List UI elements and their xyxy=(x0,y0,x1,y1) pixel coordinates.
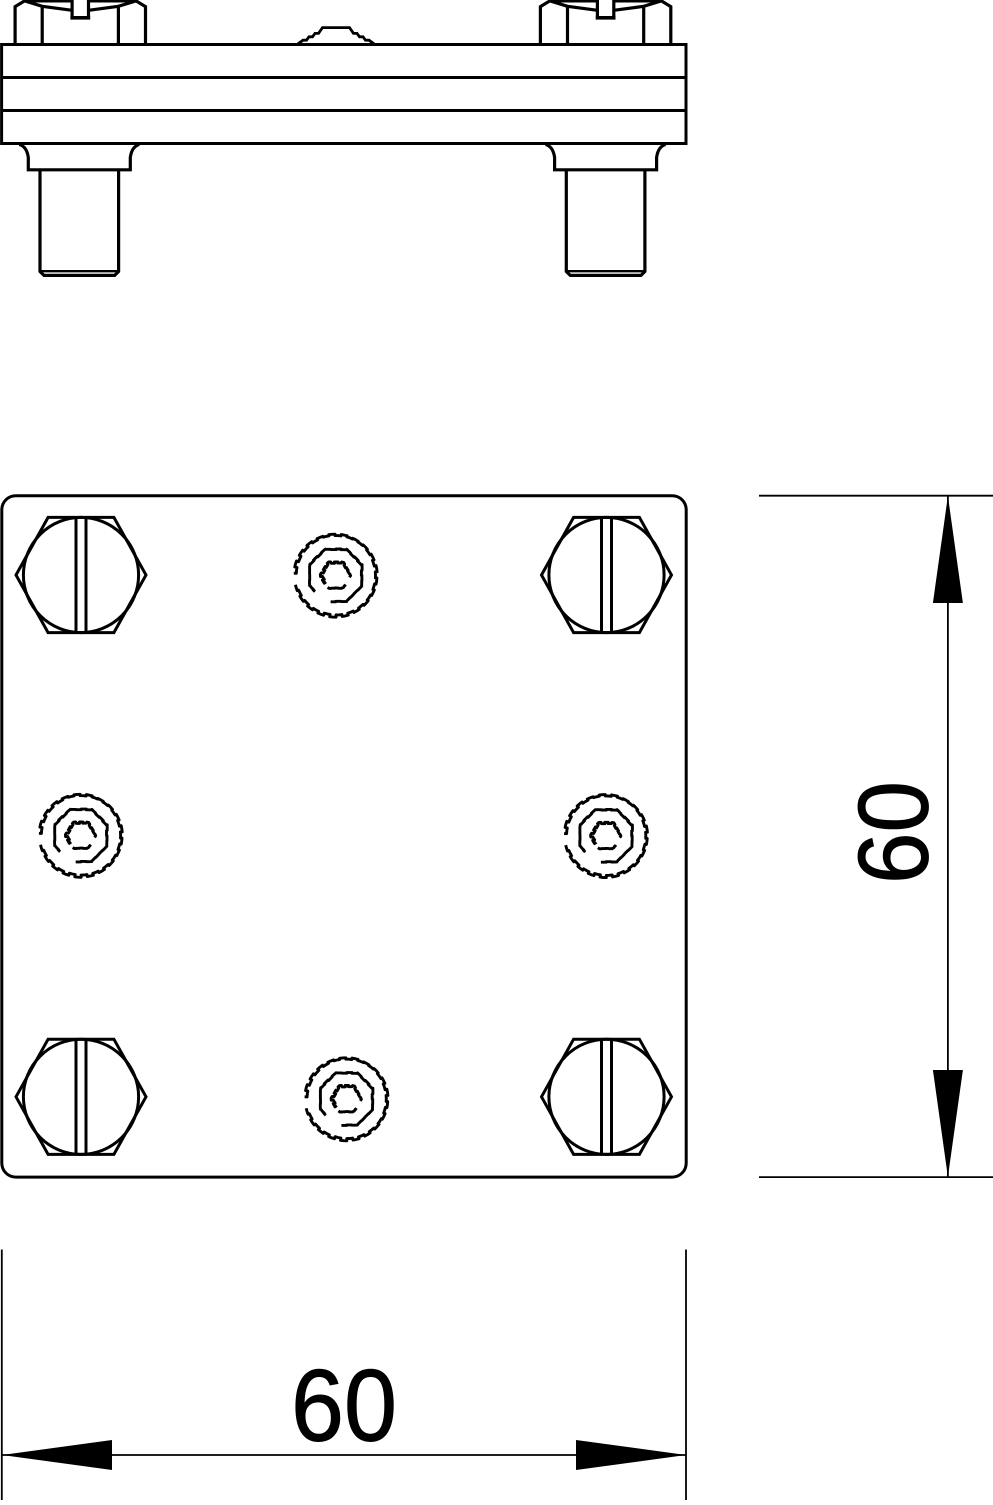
svg-text:60: 60 xyxy=(838,781,949,884)
svg-text:60: 60 xyxy=(291,1349,397,1463)
